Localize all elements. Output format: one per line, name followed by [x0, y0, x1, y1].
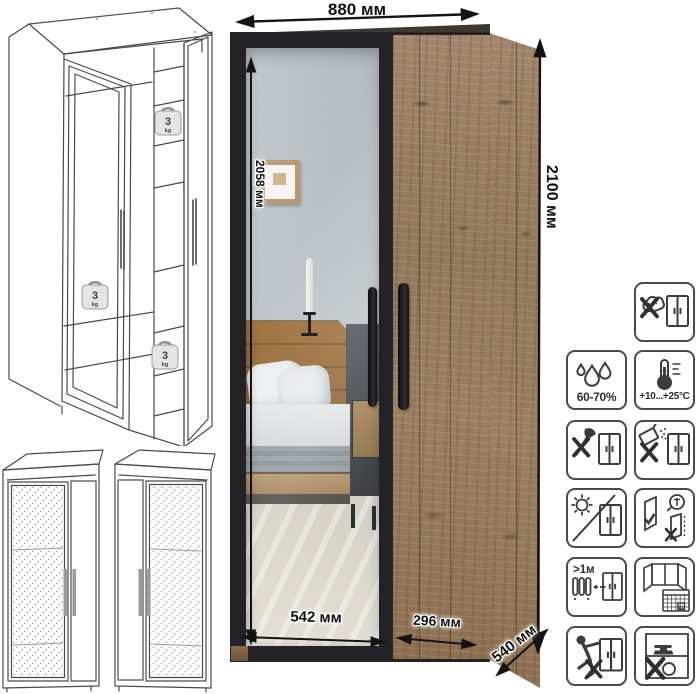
reflection-candlestick [303, 312, 316, 315]
shelf-load-badge: 3 kg [155, 108, 181, 135]
calendar-day-label: 21 [679, 604, 685, 609]
reflection-bed-sheet [246, 404, 350, 450]
ventilation-icon: 21 [638, 561, 691, 613]
isometric-wireframe-drawing: 3 kg 3 kg 3 kg [2, 2, 224, 446]
care-icon-no-abrasives [634, 420, 695, 480]
care-icon-ventilation: 21 [634, 557, 695, 617]
humidity-label: 60-70% [577, 391, 617, 404]
care-icon-no-wet-cleaning [634, 282, 695, 342]
care-icon-no-leaning [566, 626, 627, 686]
reflection-candlestick [308, 314, 311, 335]
mirror-height-dimension-label: 2058 мм [253, 160, 267, 208]
no-wet-cleaning-icon [638, 286, 691, 338]
load-value: 3 [165, 116, 171, 128]
reflection-nightstand-drawer [352, 400, 379, 458]
load-unit: kg [165, 128, 171, 134]
product-diagram-wardrobe: 3 kg 3 kg 3 kg [0, 0, 700, 694]
height-dimension-label: 2100 мм [542, 165, 560, 229]
load-unit: kg [162, 362, 168, 368]
shelf-load-badge: 3 kg [152, 342, 178, 369]
temperature-label: +10...+25°C [639, 390, 689, 403]
wardrobe-foot [231, 646, 248, 661]
no-leaning-icon [570, 630, 623, 682]
wood-door-handle [398, 283, 409, 410]
care-icon-no-heavy-load [634, 626, 695, 686]
care-icon-no-sharp-tools [566, 420, 627, 480]
care-icon-door-adjustment [634, 488, 695, 548]
humidity-icon [570, 357, 623, 391]
door-adjustment-icon [638, 492, 691, 544]
temperature-icon [638, 358, 691, 390]
no-heavy-load-icon [638, 630, 691, 682]
no-abrasives-icon [638, 424, 691, 476]
heat-distance-icon: >1м [570, 561, 623, 613]
front-view-drawings [0, 448, 224, 694]
no-sharp-tools-icon [570, 424, 623, 476]
reflection-candle [306, 258, 313, 314]
front-view-right-hinged [115, 450, 215, 692]
load-unit: kg [92, 302, 98, 308]
load-value: 3 [92, 290, 98, 302]
reflection-pillow [276, 364, 331, 414]
care-icon-avoid-sunlight [566, 488, 627, 548]
mirror-door-glass [246, 48, 379, 646]
mirror-door-width-dimension-label: 542 мм [248, 607, 384, 628]
reflection-candlestick [301, 333, 318, 336]
avoid-sunlight-icon [570, 492, 623, 544]
load-value: 3 [162, 350, 168, 362]
front-view-left-hinged [3, 450, 103, 692]
reflection-bed-shadow [246, 494, 350, 504]
width-dimension-label: 880 мм [232, 0, 482, 20]
heat-distance-label: >1м [573, 564, 595, 576]
care-icon-humidity: 60-70% [566, 350, 627, 410]
reflection-picture-art [273, 173, 286, 185]
reflection-bed-rail [246, 472, 350, 498]
care-icon-heat-distance: >1м [566, 557, 627, 617]
wardrobe-side-panel [490, 30, 540, 688]
mirror-door-handle [368, 287, 377, 407]
reflection-nightstand-leg [372, 506, 376, 530]
reflection-pillow [246, 358, 309, 414]
shelf-load-badge: 3 kg [82, 282, 108, 309]
reflection-bed-headboard [246, 320, 353, 422]
reflection-nightstand-leg [351, 504, 355, 528]
reflection-mattress [246, 446, 350, 474]
care-icon-temperature: +10...+25°C [634, 350, 695, 410]
